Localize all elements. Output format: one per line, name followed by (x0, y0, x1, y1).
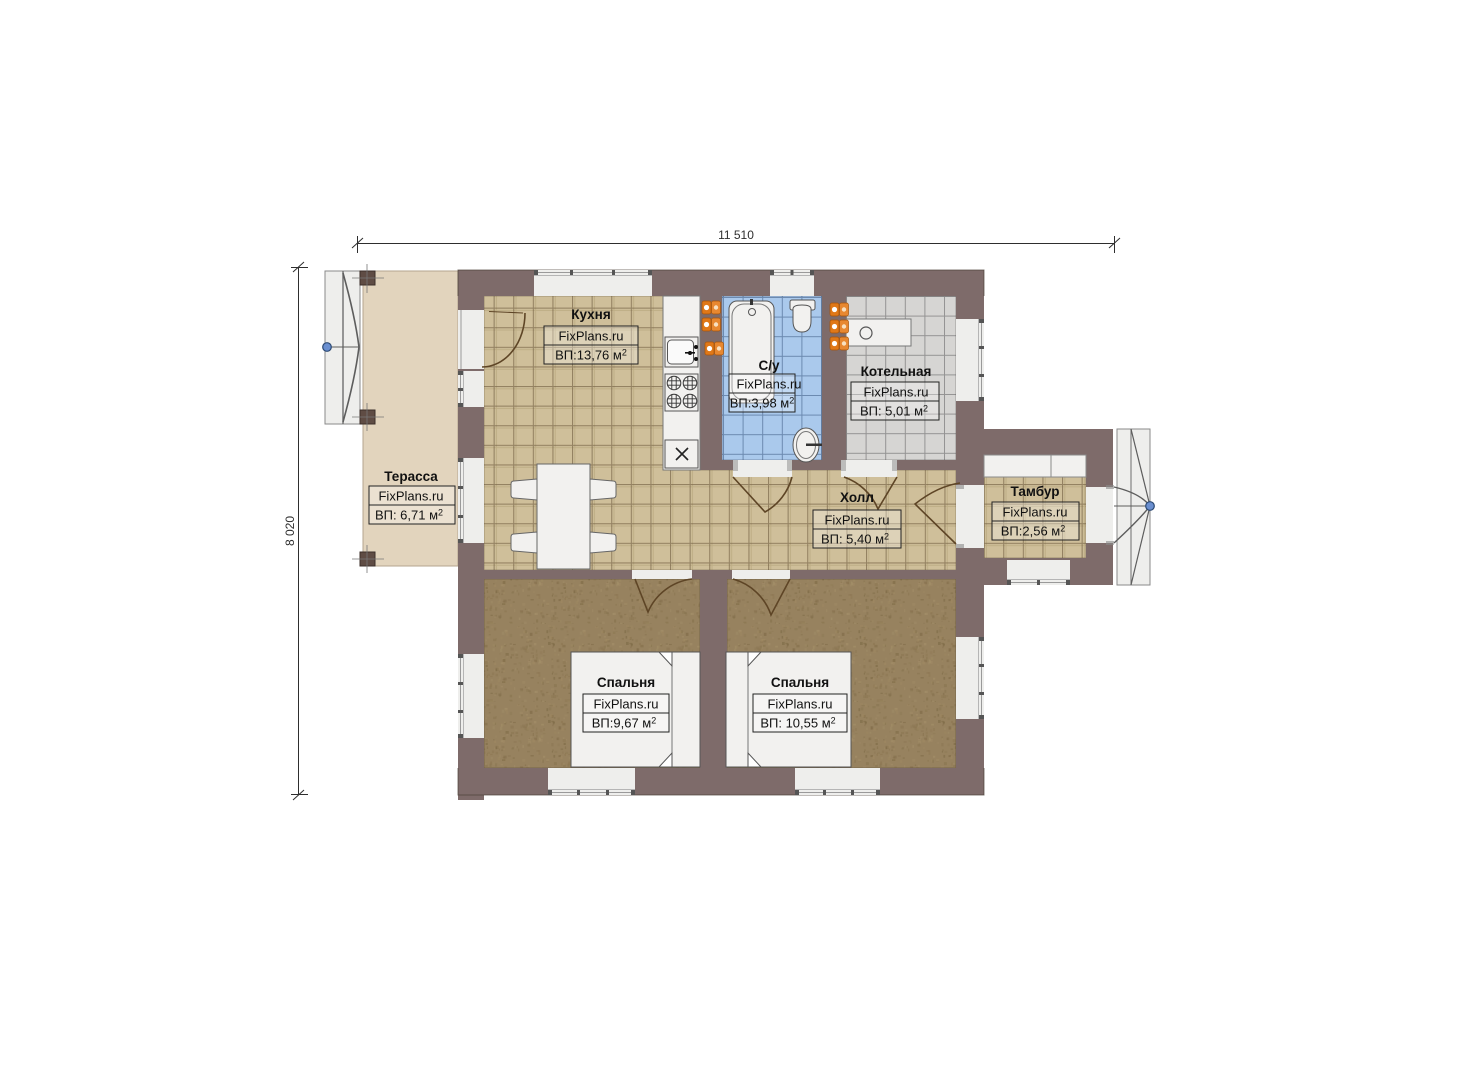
svg-text:ВП:2,56 м2: ВП:2,56 м2 (1001, 524, 1066, 539)
svg-text:8 020: 8 020 (283, 516, 297, 546)
svg-text:Спальня: Спальня (771, 675, 829, 690)
svg-text:Холл: Холл (840, 490, 874, 505)
svg-text:FixPlans.ru: FixPlans.ru (593, 697, 658, 712)
svg-text:Котельная: Котельная (861, 364, 932, 379)
svg-text:Спальня: Спальня (597, 675, 655, 690)
svg-text:ВП: 10,55 м2: ВП: 10,55 м2 (760, 716, 835, 731)
svg-text:FixPlans.ru: FixPlans.ru (824, 513, 889, 528)
svg-text:FixPlans.ru: FixPlans.ru (1002, 505, 1067, 520)
svg-text:ВП:13,76 м2: ВП:13,76 м2 (555, 348, 627, 363)
svg-text:ВП: 5,40 м2: ВП: 5,40 м2 (821, 532, 889, 547)
svg-text:FixPlans.ru: FixPlans.ru (378, 489, 443, 504)
svg-text:ВП: 6,71 м2: ВП: 6,71 м2 (375, 508, 443, 523)
svg-text:ВП: 5,01 м2: ВП: 5,01 м2 (860, 404, 928, 419)
svg-text:Тамбур: Тамбур (1011, 484, 1060, 499)
svg-text:FixPlans.ru: FixPlans.ru (767, 697, 832, 712)
svg-text:FixPlans.ru: FixPlans.ru (558, 329, 623, 344)
svg-text:ВП:3,98 м2: ВП:3,98 м2 (730, 396, 795, 411)
svg-text:С/у: С/у (758, 358, 780, 373)
svg-text:Терасса: Терасса (384, 469, 438, 484)
svg-text:FixPlans.ru: FixPlans.ru (736, 377, 801, 392)
svg-text:FixPlans.ru: FixPlans.ru (863, 385, 928, 400)
svg-text:Кухня: Кухня (571, 307, 610, 322)
svg-text:ВП:9,67 м2: ВП:9,67 м2 (592, 716, 657, 731)
svg-text:11 510: 11 510 (718, 228, 754, 242)
